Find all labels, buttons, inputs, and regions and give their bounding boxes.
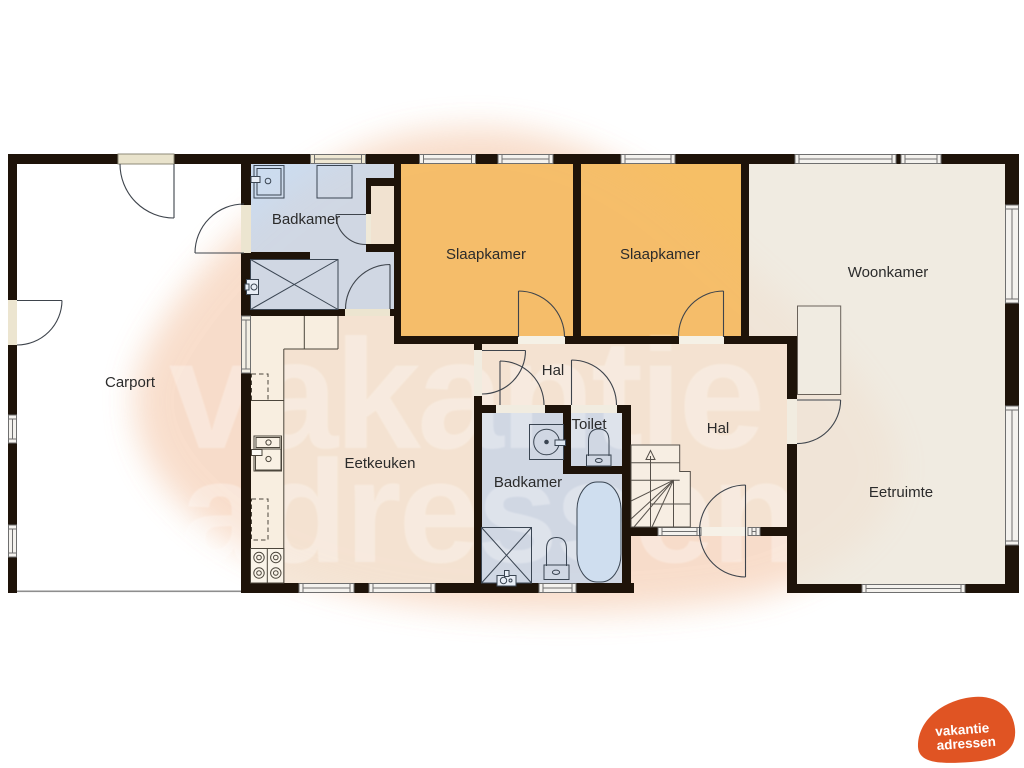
svg-text:Badkamer: Badkamer [272,211,340,228]
svg-text:Badkamer: Badkamer [494,474,562,491]
svg-text:Eetkeuken: Eetkeuken [345,455,416,472]
svg-text:Toilet: Toilet [571,416,607,433]
svg-text:Eetruimte: Eetruimte [869,484,933,501]
svg-text:Hal: Hal [542,362,565,379]
svg-text:Carport: Carport [105,374,156,391]
svg-text:Slaapkamer: Slaapkamer [446,246,526,263]
svg-text:Woonkamer: Woonkamer [848,264,929,281]
svg-text:Hal: Hal [707,420,730,437]
svg-text:Slaapkamer: Slaapkamer [620,246,700,263]
